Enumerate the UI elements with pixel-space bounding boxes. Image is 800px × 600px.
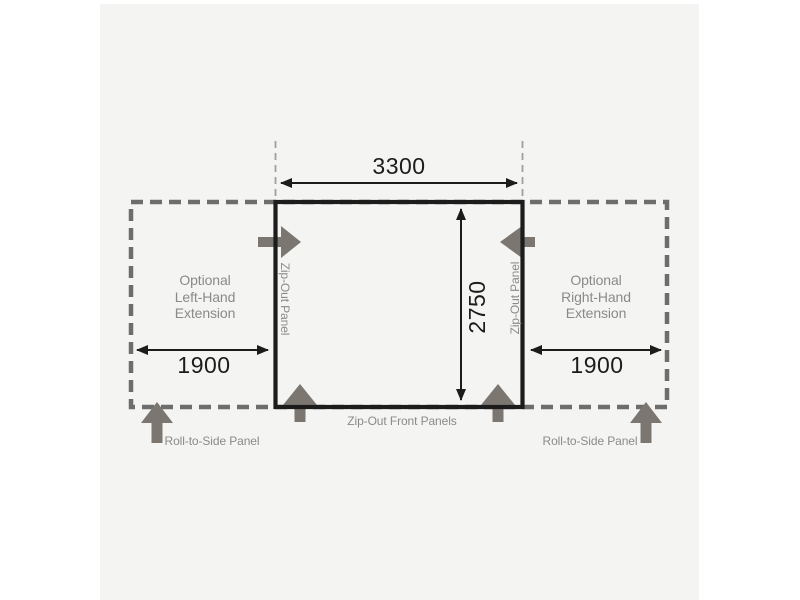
awning-dimension-diagram: 3300 2750 1900 1900 Optional Left-Hand E…	[0, 0, 800, 600]
left-extension-title: Optional Left-Hand Extension	[125, 272, 285, 322]
right-extension-title: Optional Right-Hand Extension	[516, 272, 676, 322]
right-extension-title-line3: Extension	[516, 305, 676, 322]
width-dimension-label: 3300	[329, 154, 469, 178]
right-extension-dimension-label: 1900	[527, 353, 667, 377]
right-zip-out-panel-label: Zip-Out Panel	[508, 238, 522, 358]
left-extension-dimension-label: 1900	[134, 353, 274, 377]
depth-dimension-label: 2750	[465, 237, 489, 377]
right-extension-title-line1: Optional	[516, 272, 676, 289]
right-extension-title-line2: Right-Hand	[516, 289, 676, 306]
left-extension-title-line1: Optional	[125, 272, 285, 289]
left-extension-title-line3: Extension	[125, 305, 285, 322]
diagram-linework	[0, 0, 800, 600]
left-zip-out-panel-label: Zip-Out Panel	[278, 239, 292, 359]
right-roll-to-side-label: Roll-to-Side Panel	[490, 434, 690, 448]
left-roll-to-side-label: Roll-to-Side Panel	[112, 434, 312, 448]
left-extension-title-line2: Left-Hand	[125, 289, 285, 306]
zip-out-front-panels-label: Zip-Out Front Panels	[302, 414, 502, 428]
